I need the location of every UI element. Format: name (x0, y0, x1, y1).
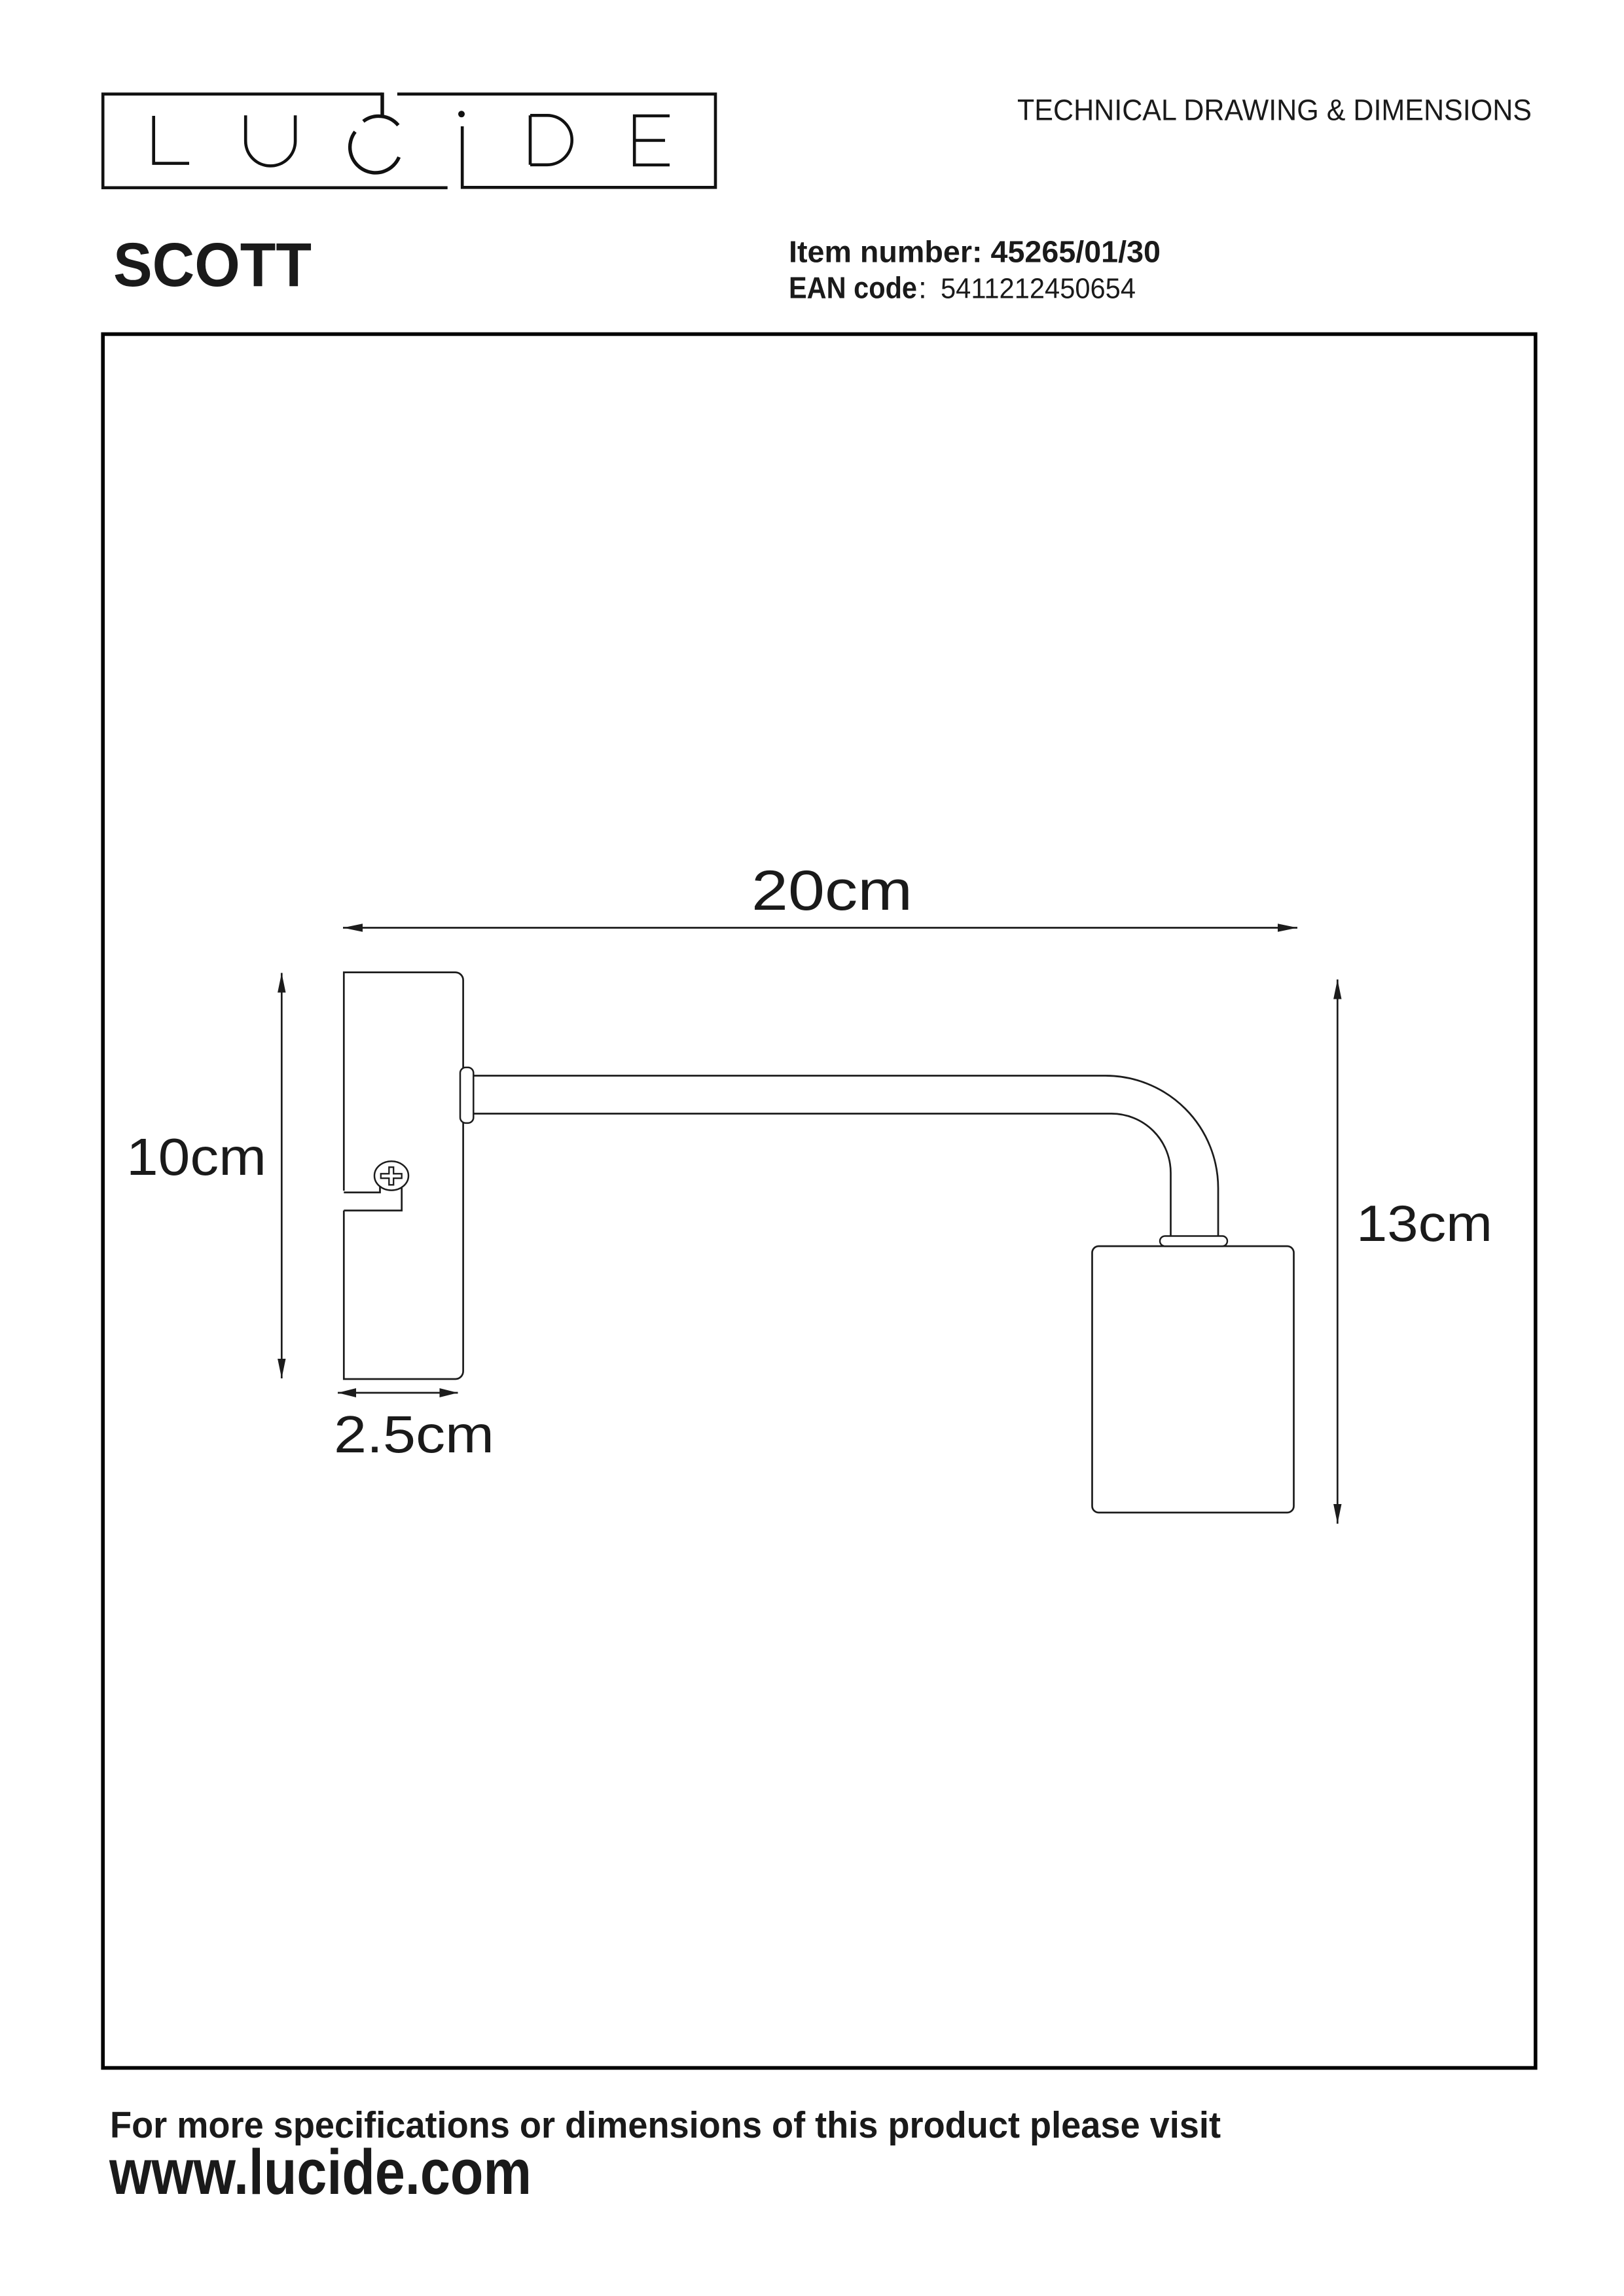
svg-text:www.lucide.com: www.lucide.com (109, 2136, 532, 2208)
svg-text:EAN code: EAN code (789, 271, 917, 305)
svg-text:SCOTT: SCOTT (113, 230, 312, 300)
svg-text:TECHNICAL DRAWING & DIMENSIONS: TECHNICAL DRAWING & DIMENSIONS (1017, 94, 1532, 127)
svg-text:10cm: 10cm (126, 1128, 266, 1186)
svg-text:Item number: 45265/01/30: Item number: 45265/01/30 (789, 235, 1161, 269)
svg-text:20cm: 20cm (751, 859, 912, 922)
svg-text::: : (918, 271, 927, 305)
svg-text:5411212450654: 5411212450654 (941, 273, 1136, 305)
svg-text:13cm: 13cm (1356, 1194, 1492, 1252)
svg-text:2.5cm: 2.5cm (334, 1405, 494, 1463)
